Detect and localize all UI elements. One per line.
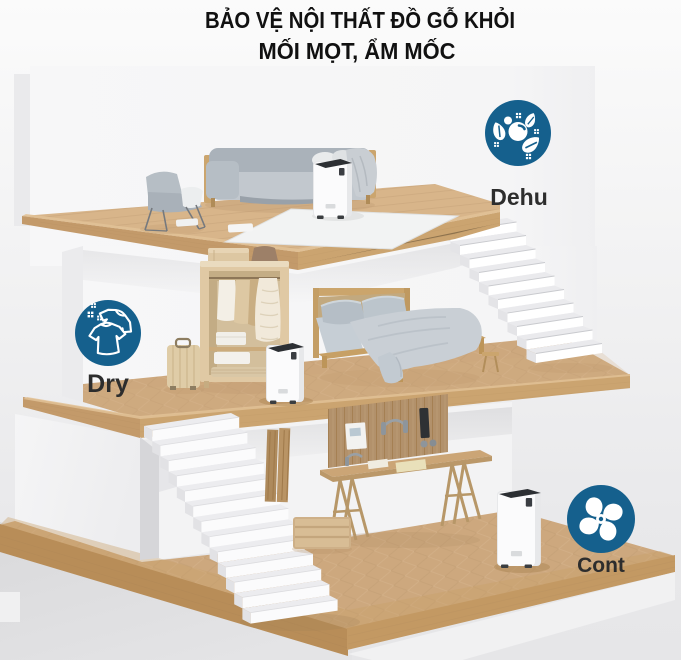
svg-text:BẢO VỆ NỘI THẤT ĐỒ GỖ KHỎI: BẢO VỆ NỘI THẤT ĐỒ GỖ KHỎI — [205, 5, 515, 33]
svg-text:Dry: Dry — [87, 370, 129, 398]
svg-text:Cont: Cont — [577, 554, 625, 577]
svg-text:Dehu: Dehu — [490, 184, 548, 210]
svg-text:MỐI MỌT, ẨM MỐC: MỐI MỌT, ẨM MỐC — [259, 37, 456, 64]
